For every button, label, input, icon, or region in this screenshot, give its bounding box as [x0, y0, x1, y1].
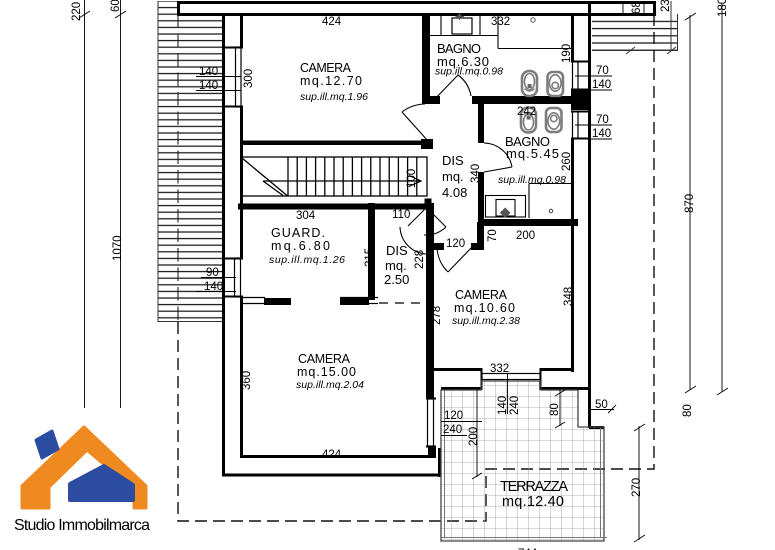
svg-text:80: 80: [549, 403, 561, 416]
svg-text:CAMERA: CAMERA: [298, 352, 351, 366]
svg-text:TERRAZZA: TERRAZZA: [500, 479, 568, 495]
svg-text:242: 242: [517, 106, 536, 118]
svg-text:2.50: 2.50: [384, 272, 409, 287]
svg-text:140: 140: [592, 79, 611, 91]
svg-text:200: 200: [516, 230, 535, 242]
svg-text:140: 140: [199, 80, 218, 92]
svg-text:70: 70: [596, 114, 609, 126]
svg-text:360: 360: [241, 371, 253, 390]
svg-text:68: 68: [631, 1, 643, 14]
svg-text:304: 304: [296, 210, 316, 222]
svg-text:50: 50: [595, 399, 608, 411]
svg-text:4.08: 4.08: [442, 185, 467, 200]
svg-text:260: 260: [561, 152, 573, 171]
svg-text:100: 100: [406, 169, 418, 188]
svg-text:70: 70: [487, 229, 499, 242]
svg-text:215: 215: [364, 248, 376, 267]
svg-text:DIS: DIS: [442, 153, 464, 168]
svg-text:mq.: mq.: [442, 169, 464, 184]
svg-text:60: 60: [110, 0, 122, 12]
svg-text:sup.ill.mq.1.26: sup.ill.mq.1.26: [269, 254, 345, 266]
svg-text:sup.ill.mq.2.04: sup.ill.mq.2.04: [296, 379, 364, 391]
svg-text:190: 190: [561, 44, 573, 63]
svg-text:233: 233: [660, 0, 672, 12]
svg-text:mq.10.60: mq.10.60: [454, 301, 515, 315]
svg-text:228: 228: [414, 250, 426, 269]
svg-text:424: 424: [322, 449, 342, 461]
svg-text:120: 120: [446, 238, 465, 250]
svg-text:240: 240: [509, 396, 521, 415]
svg-text:mq.12.40: mq.12.40: [502, 494, 564, 510]
svg-text:340: 340: [470, 164, 482, 183]
svg-text:424: 424: [322, 16, 342, 28]
svg-text:mq.: mq.: [385, 258, 407, 273]
svg-text:sup.ill.mq.1.96: sup.ill.mq.1.96: [300, 91, 368, 103]
svg-text:mq.5.45: mq.5.45: [506, 146, 559, 161]
svg-text:Studio Immobilmarca: Studio Immobilmarca: [14, 517, 150, 534]
svg-text:sup.ill.mq.0.98: sup.ill.mq.0.98: [435, 66, 503, 78]
svg-text:332: 332: [491, 16, 510, 28]
svg-text:CAMERA: CAMERA: [455, 288, 508, 302]
svg-text:mq.12.70: mq.12.70: [300, 74, 362, 88]
svg-text:GUARD.: GUARD.: [271, 226, 325, 240]
svg-text:220: 220: [71, 2, 83, 21]
svg-text:200: 200: [468, 427, 480, 446]
svg-text:sup.ill.mq.0.98: sup.ill.mq.0.98: [498, 174, 566, 186]
svg-text:300: 300: [243, 69, 255, 88]
svg-text:180: 180: [717, 0, 729, 17]
svg-text:870: 870: [684, 194, 696, 213]
svg-text:CAMERA: CAMERA: [300, 61, 352, 75]
svg-text:DIS: DIS: [386, 243, 408, 258]
svg-text:110: 110: [392, 209, 410, 221]
svg-text:278: 278: [431, 306, 443, 325]
svg-text:120: 120: [444, 410, 463, 422]
svg-text:140: 140: [497, 396, 509, 415]
svg-text:240: 240: [443, 424, 462, 436]
svg-text:332: 332: [490, 363, 509, 375]
svg-text:80: 80: [682, 404, 694, 417]
svg-text:70: 70: [596, 65, 609, 77]
svg-text:sup.ill.mq.2.38: sup.ill.mq.2.38: [452, 315, 520, 327]
svg-text:140: 140: [199, 66, 218, 78]
svg-text:140: 140: [592, 128, 611, 140]
svg-text:140: 140: [204, 281, 223, 293]
svg-text:90: 90: [206, 267, 219, 279]
svg-text:270: 270: [631, 478, 643, 497]
svg-text:1070: 1070: [112, 235, 124, 261]
svg-text:mq.15.00: mq.15.00: [297, 365, 356, 379]
svg-text:348: 348: [563, 287, 575, 306]
